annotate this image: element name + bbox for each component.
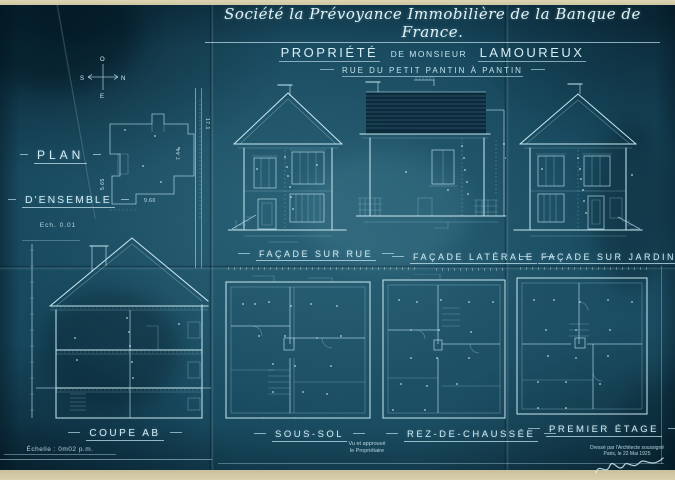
rez-de-chaussee-plan: [380, 274, 508, 424]
entry-steps: [618, 217, 640, 229]
paper-edge-bottom: [0, 470, 675, 480]
outer-walls: [517, 278, 647, 414]
dimension-tick-row: [228, 267, 418, 270]
chimney: [280, 85, 290, 96]
entrance-door: [258, 199, 276, 229]
property-title: PROPRIÉTÉ DE MONSIEUR LAMOUREUX: [205, 44, 660, 62]
chimney-flue: [575, 338, 585, 348]
premier-etage-label: PREMIER ÉTAGE: [522, 424, 650, 435]
rez-de-chaussee-label: REZ-DE-CHAUSSÉE: [380, 429, 516, 440]
premier-etage-plan: [513, 272, 651, 420]
border-line-left: [0, 459, 212, 460]
roof-slope-dark-band: [366, 92, 486, 134]
svg-text:9.60: 9.60: [144, 198, 156, 204]
upper-windows: [536, 154, 612, 186]
left-stoop: [358, 198, 382, 216]
facade-jardin-drawing: [512, 82, 644, 252]
stair-plan: [442, 308, 460, 326]
svg-text:5.65: 5.65: [100, 178, 106, 190]
company-title: Société la Prévoyance Immobilière de la …: [205, 5, 660, 43]
chimney: [570, 84, 580, 94]
lower-window-shutters: [538, 194, 564, 222]
outer-walls: [383, 280, 505, 418]
facade-rue-drawing: [228, 82, 348, 252]
upper-windows: [252, 150, 326, 188]
dimension-tick-row: [520, 267, 650, 270]
facade-laterale-drawing: [356, 76, 506, 254]
roof-section: [50, 238, 208, 306]
border-line-bottom: [218, 463, 664, 464]
blueprint-sheet: Société la Prévoyance Immobilière de la …: [0, 0, 675, 480]
coupe-ab-label: COUPE AB: [60, 428, 190, 439]
gable-roof: [520, 94, 636, 144]
property-word: PROPRIÉTÉ: [279, 45, 381, 62]
svg-text:S: S: [80, 76, 84, 82]
stair-plan: [268, 370, 290, 394]
garden-door: [588, 196, 604, 229]
small-window: [610, 198, 622, 218]
chimney-section: [92, 246, 106, 272]
scale-note: Échelle : 0m02 p.m.: [4, 446, 116, 455]
svg-text:N: N: [121, 76, 125, 82]
sous-sol-label: SOUS-SOL: [248, 429, 358, 440]
gable-roof: [234, 93, 342, 144]
coupe-ab-drawing: [26, 226, 211, 428]
svg-text:O: O: [100, 57, 105, 63]
basement-door: [418, 198, 432, 216]
property-connector: DE MONSIEUR: [385, 49, 473, 59]
facade-jardin-label: FAÇADE SUR JARDIN: [514, 252, 650, 262]
right-stoop: [474, 200, 498, 216]
lower-window-shutters: [290, 194, 324, 222]
stair-section: [70, 326, 158, 410]
approval-note: Vu et approuvé le Propriétaire: [322, 441, 412, 455]
svg-text:17.1: 17.1: [204, 118, 210, 130]
chimney-flue: [284, 338, 294, 350]
fold-crease-diagonal: [55, 0, 96, 219]
sous-sol-plan: [222, 274, 374, 424]
facade-rue-label: FAÇADE SUR RUE: [232, 249, 352, 259]
title-block: Société la Prévoyance Immobilière de la …: [205, 5, 660, 75]
address-line: RUE DU PETIT PANTIN À PANTIN: [205, 66, 660, 75]
exterior-walls: [56, 305, 202, 418]
owner-name: LAMOUREUX: [478, 45, 587, 62]
border-line-right: [661, 266, 662, 464]
facade-laterale-label: FAÇADE LATÉRALE: [386, 252, 512, 262]
svg-text:7.44: 7.44: [176, 148, 182, 160]
plan-ensemble-label-1: PLAN: [14, 148, 86, 162]
side-window: [429, 150, 457, 186]
outer-walls: [226, 282, 370, 418]
dimension-tick-row: [436, 268, 506, 271]
